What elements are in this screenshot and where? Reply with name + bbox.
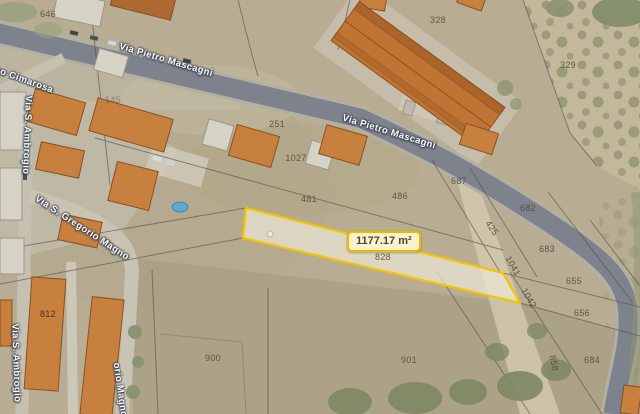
parcel-number-828: 828 [375,252,391,262]
parcel-number-145: 145 [105,95,121,105]
parcel-number-1027: 1027 [285,153,306,163]
parcel-number-900: 900 [205,353,221,363]
parcel-number-251: 251 [269,119,285,129]
parcel-number-328: 328 [430,15,446,25]
parcel-number-812: 812 [40,309,56,319]
parcel-number-481: 481 [301,194,317,204]
swimming-pool [172,202,188,212]
area-measurement-badge[interactable]: 1177.17 m² [347,231,421,252]
parcel-number-646: 646 [40,9,56,19]
parcel-number-901: 901 [401,355,417,365]
vertex-marker[interactable] [267,231,273,237]
parcel-number-656: 656 [574,308,590,318]
parcel-number-655: 655 [566,276,582,286]
parcel-number-683: 683 [539,244,555,254]
map-artwork [0,0,640,414]
parcel-number-687: 687 [451,176,467,186]
map-canvas[interactable]: Via Pietro Mascagni Via Pietro Mascagni … [0,0,640,414]
parcel-number-682: 682 [520,203,536,213]
parcel-number-486: 486 [392,191,408,201]
parcel-number-329: 329 [560,60,576,70]
parcel-number-684: 684 [584,355,600,365]
